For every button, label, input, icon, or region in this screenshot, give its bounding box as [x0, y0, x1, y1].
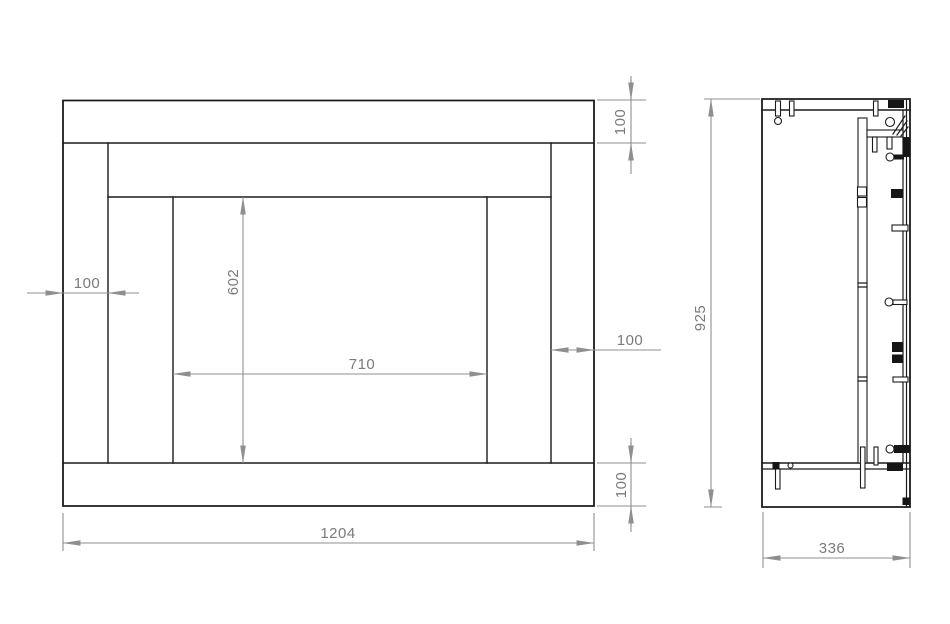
front-view [63, 101, 594, 507]
dim-label-shelf-height: 100 [612, 109, 629, 136]
dowel-icons [775, 101, 895, 489]
side-leg-board [858, 118, 867, 463]
technical-drawing-canvas: 1204 100 100 100 100 602 710 [0, 0, 950, 624]
dim-label-depth: 336 [819, 540, 846, 557]
bracket-icon [903, 498, 910, 506]
screw-head-icon [886, 153, 894, 161]
dowel-icon [776, 469, 781, 489]
dim-label-overall-height: 925 [692, 305, 709, 332]
side-view [762, 99, 910, 507]
dim-label-plinth-height: 100 [613, 472, 630, 499]
screw-head-icon [885, 298, 893, 306]
screw-shaft-icon [894, 445, 910, 453]
dim-label-opening-width: 710 [349, 356, 376, 373]
dimension-shelf-height: 100 [597, 76, 646, 174]
dim-label-left-leg-width: 100 [74, 275, 101, 292]
dowel-icon [861, 447, 866, 488]
dimension-right-leg-width: 100 [551, 332, 661, 350]
bracket-icon [892, 355, 903, 364]
dimension-plinth-height: 100 [597, 438, 646, 532]
dowel-icon [776, 101, 781, 116]
dimension-left-leg-width: 100 [27, 275, 139, 293]
dim-label-overall-width: 1204 [320, 525, 355, 542]
dowel-head-icon [775, 118, 782, 125]
bracket-icon [887, 463, 903, 471]
dimension-depth: 336 [763, 512, 910, 568]
fireplace-surround-drawing: 1204 100 100 100 100 602 710 [0, 0, 950, 624]
dim-label-opening-height: 602 [225, 269, 242, 296]
dimension-opening-height: 602 [225, 197, 243, 463]
bracket-icon [773, 462, 780, 469]
dim-label-right-leg-width: 100 [617, 332, 644, 349]
dimension-opening-width: 710 [173, 356, 487, 374]
dowel-head-icon [886, 118, 895, 127]
dowel-icon [887, 137, 892, 149]
screw-head-icon [886, 445, 894, 453]
dimension-overall-width: 1204 [63, 513, 594, 551]
bracket-icon [891, 189, 903, 198]
bracket-icon [892, 342, 903, 352]
dowel-icon [873, 137, 878, 152]
dowel-icon [790, 101, 795, 116]
dimension-overall-height: 925 [692, 99, 760, 507]
bracket-icon [888, 100, 904, 108]
dowel-icon [874, 101, 879, 116]
plate-icon [893, 377, 908, 382]
plate-icon [892, 225, 908, 231]
screw-shaft-icon [893, 300, 907, 305]
dowel-head-icon [788, 463, 793, 468]
dowel-icon [874, 447, 878, 465]
bracket-icon [904, 137, 911, 157]
front-outer-outline [63, 101, 594, 507]
